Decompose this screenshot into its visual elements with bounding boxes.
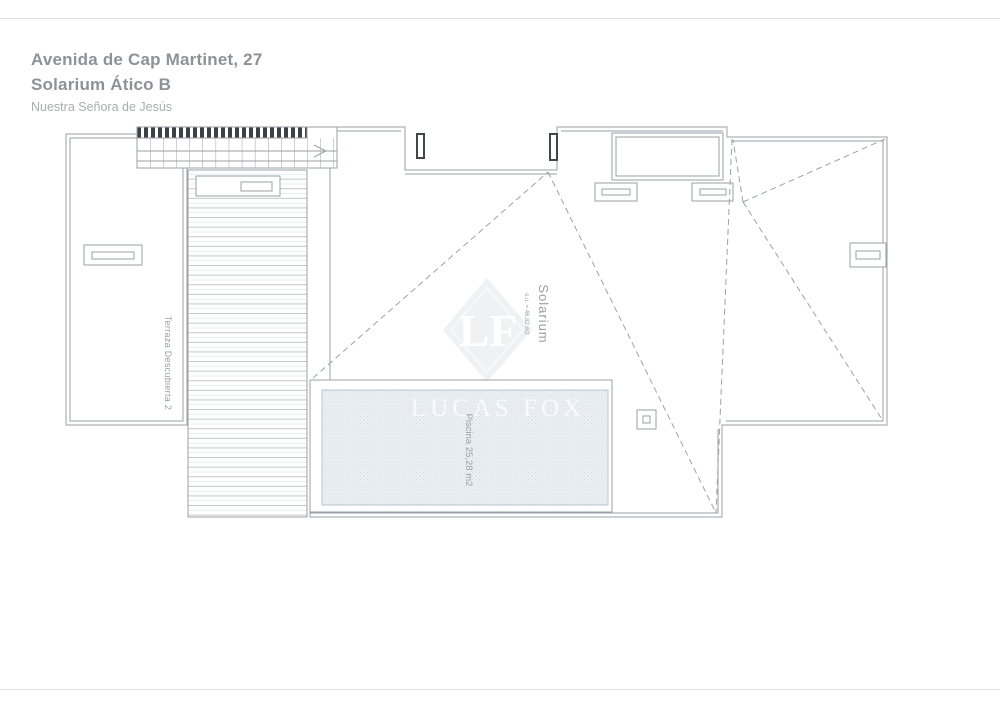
roof-recess bbox=[612, 133, 723, 180]
deck-area bbox=[188, 170, 307, 517]
roof-vent-1 bbox=[595, 183, 637, 201]
solarium-label: Solarium bbox=[536, 284, 551, 343]
watermark-initials: LF bbox=[459, 305, 518, 356]
solarium-area-note: s.u. = 46,82 m2 bbox=[523, 293, 529, 335]
pool-area: LUCAS FOX Piscina 25,28 m2 bbox=[310, 380, 612, 512]
drain-box bbox=[637, 410, 656, 429]
chimney-right bbox=[550, 134, 557, 160]
terrace-label: Terraza Descubierta 2 bbox=[163, 316, 173, 410]
stair-run bbox=[137, 127, 337, 168]
chimney-left bbox=[417, 134, 424, 158]
deck-equipment-box bbox=[196, 176, 280, 196]
roof-vent-2 bbox=[692, 183, 733, 201]
terrace-wall-vent bbox=[84, 245, 142, 265]
plan-sheet: Avenida de Cap Martinet, 27 Solarium Áti… bbox=[0, 0, 1000, 707]
floor-plan-svg: LF bbox=[0, 0, 1000, 707]
pool-label: Piscina 25,28 m2 bbox=[463, 414, 474, 487]
watermark-brand: LUCAS FOX bbox=[411, 395, 585, 422]
wall-vent-right bbox=[850, 243, 886, 267]
